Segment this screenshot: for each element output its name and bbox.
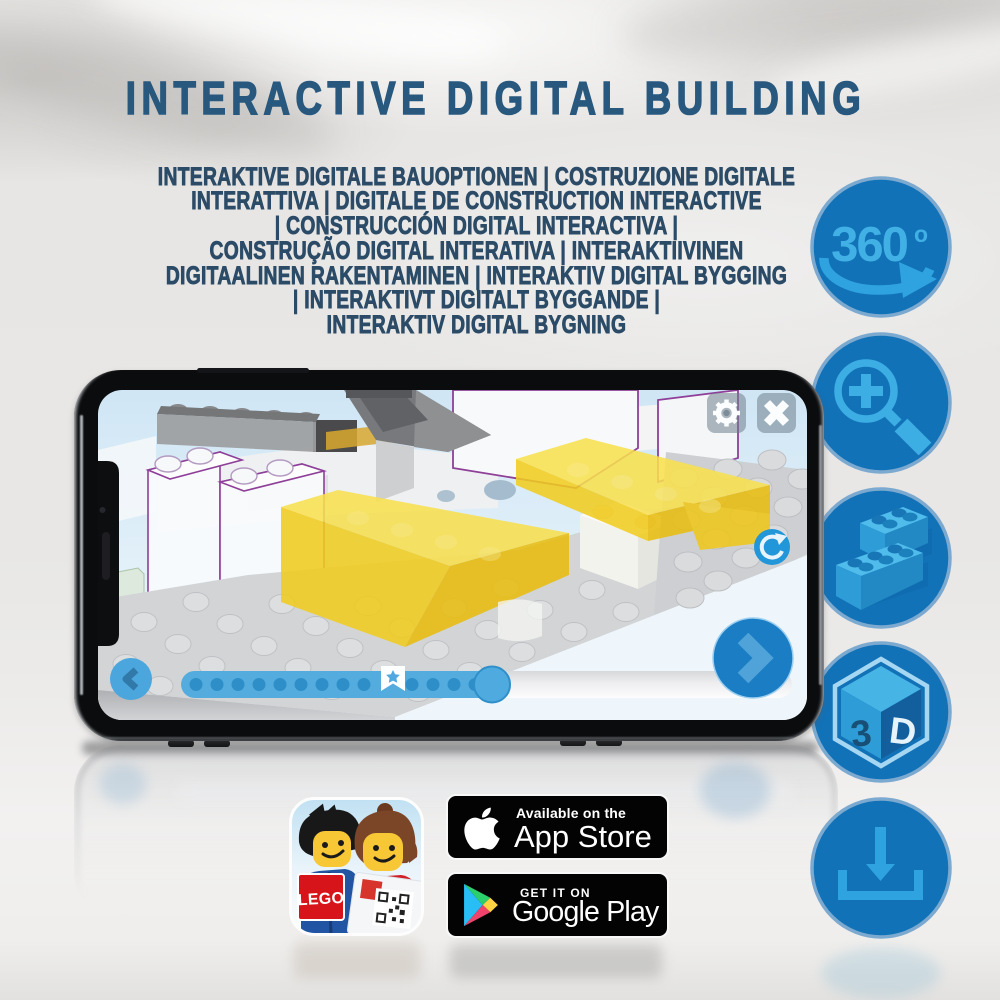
svg-text:D: D [887,710,919,754]
svg-text:o: o [914,221,928,247]
svg-text:360: 360 [831,218,908,272]
svg-text:LEGO: LEGO [297,890,344,909]
